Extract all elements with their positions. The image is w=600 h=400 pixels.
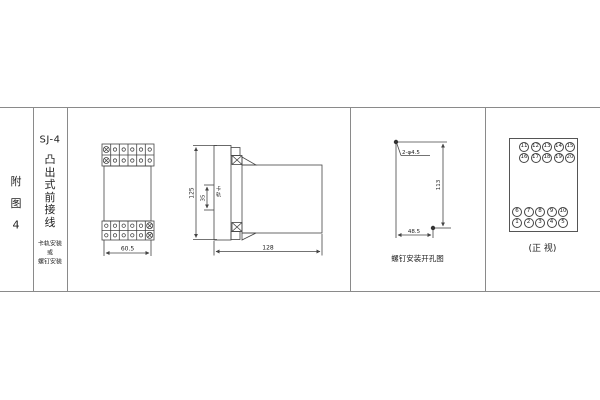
terminal-group-bottom: 6 7 8 9 10 1 2 3 4 5: [512, 207, 568, 228]
terminal-circle: 19: [554, 153, 564, 163]
mount-type-line: 卡轨安装: [38, 239, 62, 248]
front-width-dim-text: 60.5: [121, 246, 135, 253]
terminal-circle: 11: [519, 142, 529, 152]
terminal-circle: 9: [547, 207, 557, 217]
terminal-circle: 18: [542, 153, 552, 163]
drill-height-dim-text: 113: [436, 179, 442, 190]
hole-label-text: 2-φ4.5: [402, 150, 420, 156]
mount-type-line: 或: [47, 248, 53, 257]
side-view-outline: [214, 146, 322, 241]
type-char: 线: [45, 214, 56, 230]
terminal-circle: 3: [535, 218, 545, 228]
divider-1: [33, 107, 34, 291]
side-height-dim-text: 125: [189, 187, 196, 199]
terminal-row: 1 2 3 4 5: [512, 218, 568, 228]
terminal-circle: 20: [565, 153, 575, 163]
mount-type-line: 螺钉安装: [38, 257, 62, 266]
front-side-view-drawing: 60.5 125 35 128: [67, 107, 350, 291]
side-height-dimension: [193, 146, 217, 240]
model-label: SJ-4: [40, 135, 61, 146]
mount-hole-top: [394, 140, 398, 144]
terminal-circle: 1: [512, 218, 522, 228]
terminal-circle: 13: [542, 142, 552, 152]
mount-hole-bottom: [431, 226, 435, 230]
terminal-group-top: 11 12 13 14 15 16 17 18 19 20: [519, 142, 575, 163]
terminal-circle: 8: [535, 207, 545, 217]
terminal-circle: 14: [554, 142, 564, 152]
terminal-circle: 10: [558, 207, 568, 217]
terminal-circle: 5: [558, 218, 568, 228]
drill-caption: 螺钉安装开孔图: [350, 253, 485, 264]
terminal-circle: 7: [524, 207, 534, 217]
front-view-bottom-terminal-block: [102, 221, 154, 240]
terminal-row: 6 7 8 9 10: [512, 207, 568, 217]
terminal-circle: 2: [524, 218, 534, 228]
rail-label: 卡轨: [215, 186, 220, 198]
figure-label-char: 4: [13, 219, 20, 232]
page: { "frame": { "line_color": "#8a8a8a" }, …: [0, 0, 600, 400]
side-depth-dim-text: 128: [262, 245, 274, 252]
terminal-circle: 12: [531, 142, 541, 152]
band-bottom-line: [0, 291, 600, 292]
side-rail-dim-text: 35: [201, 194, 207, 201]
front-view-top-terminal-block: [102, 144, 154, 166]
drill-width-dim-text: 48.5: [408, 229, 421, 235]
terminal-circle: 4: [547, 218, 557, 228]
terminal-row: 11 12 13 14 15: [519, 142, 575, 152]
figure-label-char: 附: [11, 173, 22, 189]
terminal-circle: 17: [531, 153, 541, 163]
figure-label-char: 图: [11, 195, 22, 211]
terminal-circle: 15: [565, 142, 575, 152]
terminal-circle: 16: [519, 153, 529, 163]
terminal-caption: (正 视): [485, 241, 600, 254]
terminal-panel: 11 12 13 14 15 16 17 18 19 20 6 7 8 9 10…: [509, 138, 578, 232]
terminal-circle: 6: [512, 207, 522, 217]
front-view-body: [104, 166, 151, 221]
terminal-row: 16 17 18 19 20: [519, 153, 575, 163]
divider-4: [485, 107, 486, 291]
